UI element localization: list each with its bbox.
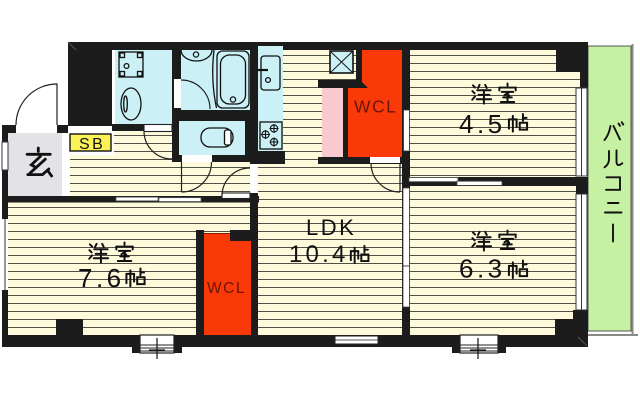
svg-text:WCL: WCL [207, 280, 246, 297]
svg-text:WCL: WCL [354, 97, 397, 117]
svg-text:4.5: 4.5 [459, 109, 506, 139]
svg-text:6.3: 6.3 [459, 254, 506, 284]
svg-text:10.4: 10.4 [289, 241, 349, 268]
svg-text:7.6: 7.6 [78, 263, 125, 293]
svg-text:LDK: LDK [306, 215, 356, 240]
svg-text:SB: SB [79, 136, 105, 153]
